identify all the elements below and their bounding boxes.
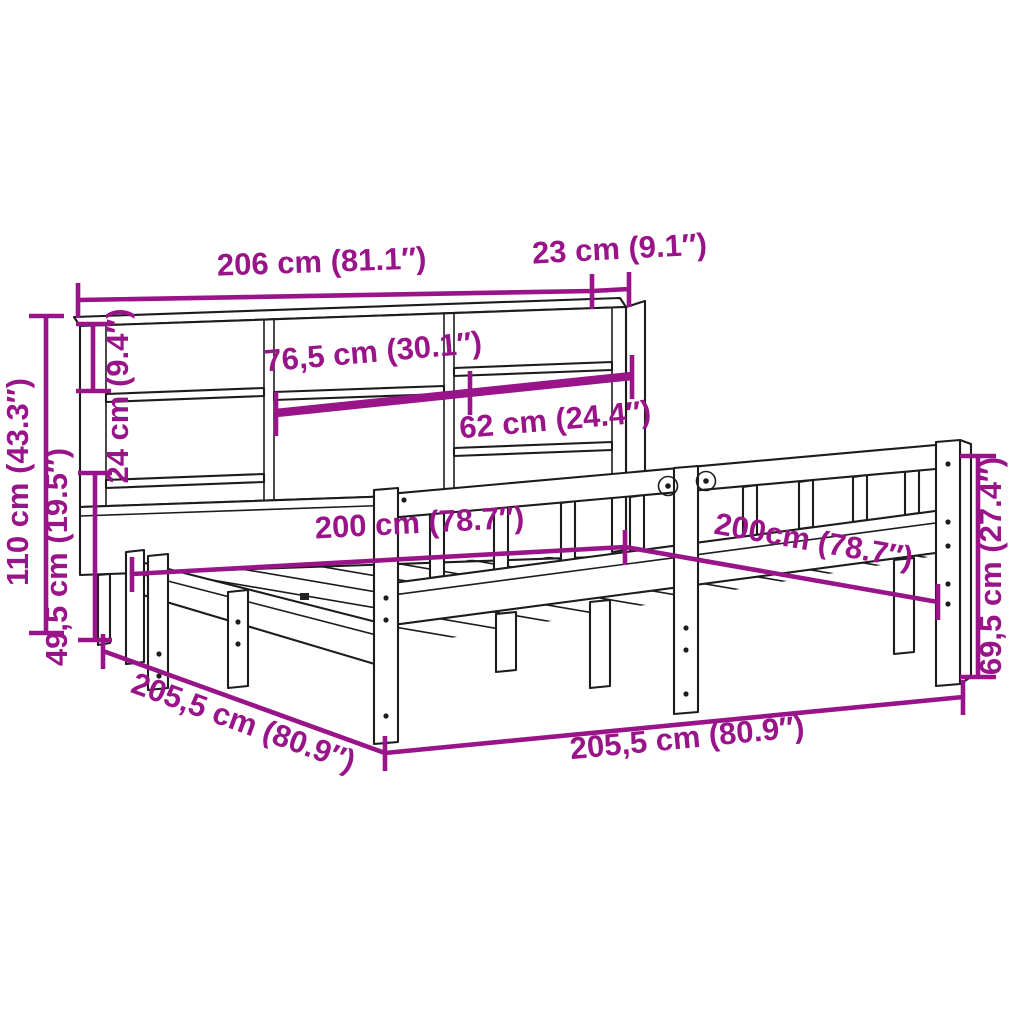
dim-headboard-total-height-label: 110 cm (43.3″) [0,378,35,586]
post-middle-right [674,466,698,714]
dim-headboard-lower-height-label: 49,5 cm (19.5″) [39,448,74,666]
dim-bookcase-depth: 23 cm (9.1″) [531,226,708,307]
mid-leg-center-1 [496,612,516,672]
mid-leg-center-2 [590,600,610,688]
head-leg-far [126,550,144,664]
post-right-side-face [960,440,971,684]
post-right [936,440,960,686]
dim-bookcase-width-label: 206 cm (81.1″) [216,240,427,282]
bed-dimension-diagram: 206 cm (81.1″) 23 cm (9.1″) 76,5 cm (30.… [0,0,1024,1024]
dim-frame-front-length-label: 205,5 cm (80.9″) [568,709,806,766]
dim-footboard-height-label: 69,5 cm (27.4″) [973,457,1008,675]
diagram-canvas: 206 cm (81.1″) 23 cm (9.1″) 76,5 cm (30.… [0,0,1024,1024]
dim-shelf-spacing-height-label: 24 cm (9.4″) [100,308,135,483]
slat-clip [300,593,309,600]
mid-leg-left [228,590,248,688]
dim-bookcase-depth-label: 23 cm (9.1″) [531,226,708,270]
left-side-rail [133,560,388,668]
